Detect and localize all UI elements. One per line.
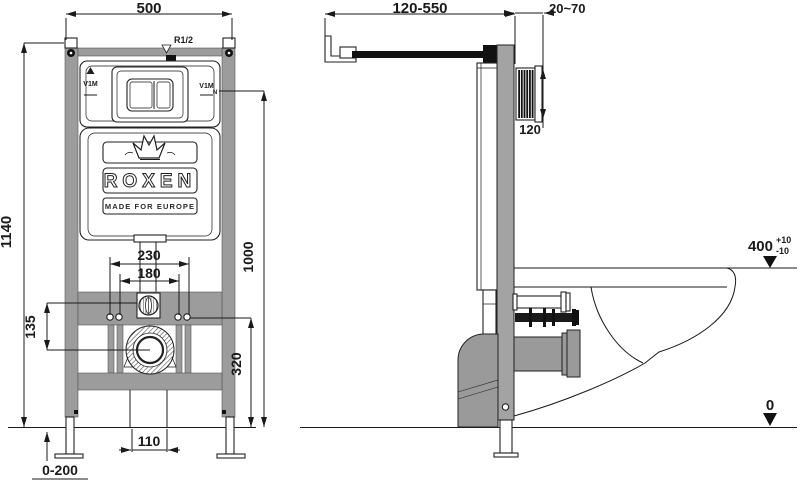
corner-bracket-left (65, 38, 77, 48)
dim-flush-span-label: 230 (137, 247, 161, 263)
foot-plate-right (217, 454, 245, 458)
dim-outlet-width-label: 110 (138, 433, 161, 449)
leg-left (66, 417, 74, 454)
flush-shaft (516, 66, 542, 122)
fixing-hole (116, 314, 122, 320)
plate-mark-right: V1M (199, 83, 214, 90)
dim-drain-height-label: 320 (228, 352, 244, 376)
drain-pipe (514, 337, 562, 371)
dim-wall-range-label: 20~70 (549, 1, 586, 16)
installation-frame-drawing: 500 1140 230 180 135 320 1000 110 0-200 … (0, 0, 800, 482)
lower-crossbar (78, 373, 222, 390)
drain-flange (567, 330, 580, 377)
seat-tol-minus-label: -10 (776, 246, 789, 256)
shaft-end-plate (535, 66, 542, 122)
thread-label: R1/2 (174, 35, 193, 45)
support-rod (352, 51, 483, 58)
seat-level-marker-icon (763, 256, 777, 268)
fixing-hole (175, 314, 181, 320)
flush-plate (80, 61, 220, 127)
bolt-hole (502, 404, 508, 410)
frame-column-side (497, 45, 514, 420)
floor-level-label: 0 (766, 397, 774, 414)
foot-plate-left (55, 454, 83, 458)
wall-bracket (325, 36, 497, 63)
technical-drawing-page: 500 1140 230 180 135 320 1000 110 0-200 … (0, 0, 800, 482)
seat-height-label: 400 (748, 238, 773, 255)
leg-right (226, 417, 234, 454)
brand-tagline-text: MADE FOR EUROPE (105, 202, 195, 211)
plate-mark-left: V1M (83, 81, 98, 88)
n-mark-label: N (213, 90, 217, 96)
dim-bolt-span-label: 180 (137, 265, 161, 281)
brand-logo-text: ROXEN (104, 171, 197, 192)
dim-axis-height-label: 1000 (240, 241, 256, 272)
dim-width-label: 500 (136, 0, 161, 17)
corner-bracket-right (223, 38, 235, 48)
dim-depth-range-label: 120-550 (392, 0, 447, 17)
dim-shaft-label: 120 (519, 122, 541, 137)
foot-plate-side (494, 453, 518, 457)
dim-offset-label: 135 (22, 315, 38, 339)
flush-buttons (127, 79, 173, 111)
flush-pipe-collar (134, 235, 166, 242)
floor-level-marker-icon (763, 413, 777, 426)
side-view: 120-550 20~70 120 400 +10 -10 0 (300, 0, 797, 457)
flush-downpipe (483, 290, 496, 335)
water-inlet-pipes (513, 292, 579, 327)
drain-elbow (458, 334, 498, 427)
cistern-side (477, 63, 498, 335)
seat-tol-plus-label: +10 (776, 235, 791, 245)
rod-clamp (483, 45, 497, 63)
drain-assembly (458, 330, 580, 427)
dim-leg-range-label: 0-200 (42, 462, 78, 478)
front-view: 500 1140 230 180 135 320 1000 110 0-200 … (0, 0, 264, 479)
dim-height-label: 1140 (0, 216, 15, 249)
